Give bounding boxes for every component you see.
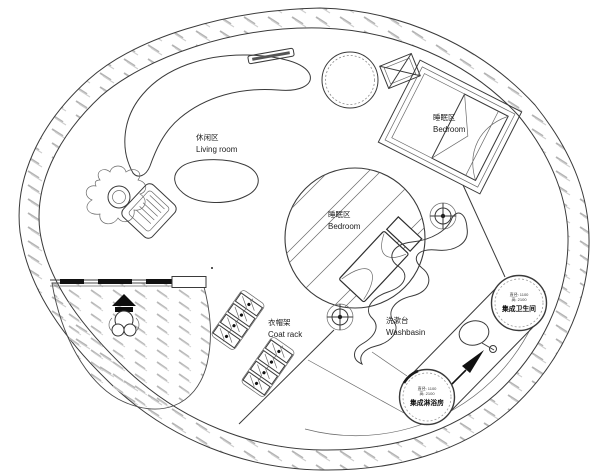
coat-rack-label-en: Coat rack <box>268 330 303 339</box>
toilet-pod-height: 高: 2100 <box>511 296 527 302</box>
toilet-pod-label: 集成卫生间 <box>501 304 536 313</box>
living-room-label-zh: 休闲区 <box>196 132 219 142</box>
shower-pod-label: 集成淋浴房 <box>409 398 444 407</box>
round-table-icon <box>322 52 378 108</box>
wall-shelf-icon <box>248 48 295 64</box>
reference-dot <box>211 267 213 269</box>
floor-plan-canvas: 直径: 1100 高: 2100 集成卫生间 直径: 1100 高: 2100 … <box>0 0 611 473</box>
bedroom-upper-label-en: Bedroom <box>433 125 466 134</box>
coat-rack-icon <box>210 289 265 351</box>
washbasin-label-en: Washbasin <box>386 328 425 337</box>
coat-rack-label-zh: 衣帽架 <box>268 317 291 327</box>
toilet-pod: 直径: 1100 高: 2100 集成卫生间 <box>492 276 547 331</box>
bedroom-upper-label-zh: 睡眠区 <box>433 113 456 122</box>
floor-plan-drawing: 直径: 1100 高: 2100 集成卫生间 直径: 1100 高: 2100 … <box>0 0 611 473</box>
sliding-door-icon <box>50 277 206 288</box>
bedroom-center-label-zh: 睡眠区 <box>328 210 351 219</box>
shower-pod: 直径: 1100 高: 2100 集成淋浴房 <box>400 370 455 425</box>
kidney-table-icon <box>175 160 259 203</box>
curved-sofa-icon <box>125 55 311 176</box>
bed-icon <box>432 94 508 180</box>
crosshair-target-icon <box>327 304 353 330</box>
bedroom-center-label-en: Bedroom <box>328 222 361 231</box>
crosshair-target-icon <box>430 203 456 229</box>
living-room-label-en: Living room <box>196 145 238 154</box>
washbasin-label-zh: 洗漱台 <box>386 315 409 325</box>
deck-area <box>50 277 210 410</box>
shower-pod-height: 高: 2100 <box>419 390 435 396</box>
direction-arrow-icon <box>452 350 484 384</box>
coat-rack-icon <box>240 336 295 398</box>
